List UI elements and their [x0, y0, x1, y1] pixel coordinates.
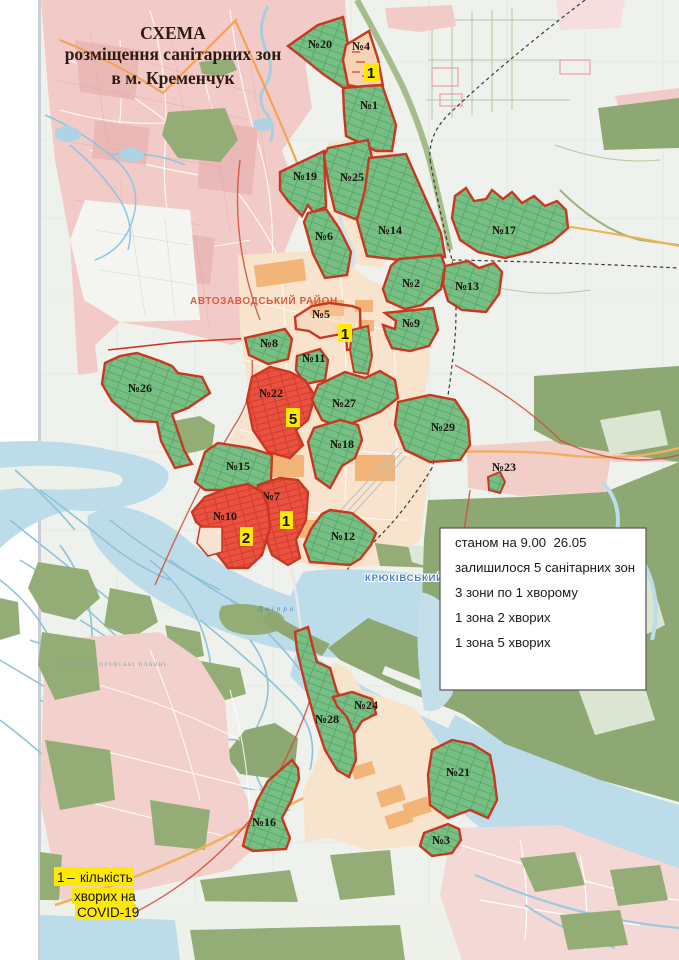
- svg-text:№15: №15: [226, 459, 250, 473]
- svg-text:№14: №14: [378, 223, 402, 237]
- svg-text:станом на 9.00 26.05: станом на 9.00 26.05: [455, 535, 586, 550]
- svg-text:№10: №10: [213, 509, 237, 523]
- svg-text:№3: №3: [432, 833, 450, 847]
- svg-text:№27: №27: [332, 396, 356, 410]
- svg-text:3 зони по 1 хворому: 3 зони по 1 хворому: [455, 585, 578, 600]
- svg-text:№16: №16: [252, 815, 276, 829]
- svg-text:хворих на: хворих на: [74, 889, 136, 904]
- svg-text:№26: №26: [128, 381, 152, 395]
- svg-text:№1: №1: [360, 98, 378, 112]
- svg-text:№22: №22: [259, 386, 283, 400]
- svg-text:1: 1: [367, 65, 375, 82]
- svg-text:№11: №11: [302, 351, 325, 365]
- svg-text:1: 1: [282, 513, 290, 530]
- svg-text:№20: №20: [308, 37, 332, 51]
- svg-text:розміщення санітарних зон: розміщення санітарних зон: [65, 44, 282, 64]
- svg-text:1: 1: [341, 326, 349, 343]
- svg-text:СХЕМА: СХЕМА: [140, 23, 206, 43]
- svg-text:№9: №9: [402, 316, 420, 330]
- svg-text:№29: №29: [431, 420, 455, 434]
- svg-text:1 зона 2 хворих: 1 зона 2 хворих: [455, 610, 551, 625]
- svg-text:№8: №8: [260, 336, 278, 350]
- svg-text:№4: №4: [352, 39, 370, 53]
- svg-text:№18: №18: [330, 437, 354, 451]
- svg-text:–: –: [67, 870, 75, 885]
- svg-text:Дніпро: Дніпро: [257, 605, 296, 613]
- svg-text:кількість: кількість: [80, 870, 133, 885]
- svg-text:№28: №28: [315, 712, 339, 726]
- svg-text:1 зона 5 хворих: 1 зона 5 хворих: [455, 635, 551, 650]
- svg-text:№17: №17: [492, 223, 516, 237]
- svg-text:№13: №13: [455, 279, 479, 293]
- svg-text:№19: №19: [293, 169, 317, 183]
- svg-text:№5: №5: [312, 307, 330, 321]
- svg-text:ЗЕЛЕНОДНІПРОВСЬКІ ПЛАВНІ: ЗЕЛЕНОДНІПРОВСЬКІ ПЛАВНІ: [58, 662, 167, 668]
- svg-text:5: 5: [289, 411, 297, 428]
- svg-text:1: 1: [57, 870, 65, 885]
- svg-text:№25: №25: [340, 170, 364, 184]
- svg-text:№12: №12: [331, 529, 355, 543]
- svg-text:КРЮКІВСЬКИЙ: КРЮКІВСЬКИЙ: [365, 572, 444, 584]
- svg-text:в м. Кременчук: в м. Кременчук: [111, 68, 235, 88]
- svg-text:2: 2: [242, 530, 250, 547]
- svg-text:№2: №2: [402, 276, 420, 290]
- svg-text:№6: №6: [315, 229, 333, 243]
- svg-text:№23: №23: [492, 460, 516, 474]
- svg-text:COVID-19: COVID-19: [77, 905, 139, 920]
- svg-text:№24: №24: [354, 698, 378, 712]
- svg-text:залишилося 5 санітарних зон: залишилося 5 санітарних зон: [455, 560, 635, 575]
- svg-text:№21: №21: [446, 765, 470, 779]
